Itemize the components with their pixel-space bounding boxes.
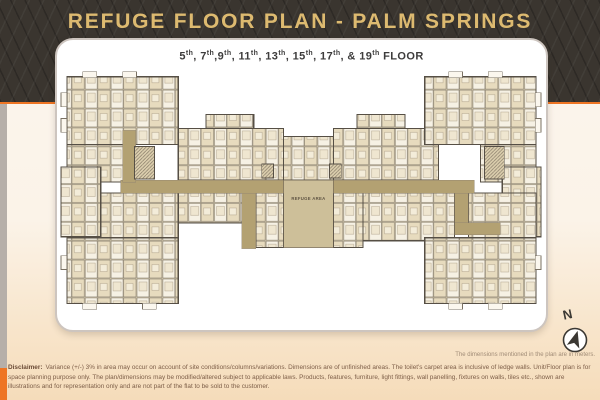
floors-line: 5th, 7th,9th, 11th, 13th, 15th, 17th, & … [57,50,546,63]
disclaimer-label: Disclaimer: [8,364,42,371]
page: REFUGE FLOOR PLAN - PALM SPRINGS 5th, 7t… [0,0,600,400]
lift-core-left-icon [262,164,274,178]
corridor-right-horizontal [455,223,501,235]
unit-block-bottom-right-wing [425,238,536,304]
unit-block-center-top-mid [284,136,334,180]
floor-plan-card: 5th, 7th,9th, 11th, 13th, 15th, 17th, & … [55,38,548,332]
refuge-area [284,180,334,248]
corridor-bottom-left-stub [242,193,256,249]
unit-block-center-bottom-right [363,193,454,241]
unit-block-center-top-right [333,128,438,180]
compass-north-label: N [561,306,573,323]
unit-block-left-protrusion [61,167,101,237]
left-orange-accent [0,368,7,400]
stair-core-left-icon [135,146,155,179]
compass: N [551,303,595,359]
floor-plan: REFUGE AREA [59,70,543,322]
lift-core-right-icon [329,164,341,178]
left-gray-band [0,104,7,368]
dimensions-note: The dimensions mentioned in the plan are… [295,352,595,358]
unit-block-left-lower-mid [101,193,179,238]
refuge-area-label: REFUGE AREA [291,196,325,201]
page-title: REFUGE FLOOR PLAN - PALM SPRINGS [0,10,600,34]
disclaimer: Disclaimer:Variance (+/-) 3% in area may… [8,363,596,392]
unit-block-bottom-left-wing [67,238,178,304]
corridor-left-stub [123,130,136,182]
unit-block-center-bottom-left [178,193,242,223]
disclaimer-text: Variance (+/-) 3% in area may occur on a… [8,364,590,390]
unit-block-top-right-wing [425,77,536,145]
unit-block-center-bottom-midright [333,193,363,248]
stair-core-right-icon [484,146,504,179]
unit-block-center-bottom-midleft [256,193,284,248]
